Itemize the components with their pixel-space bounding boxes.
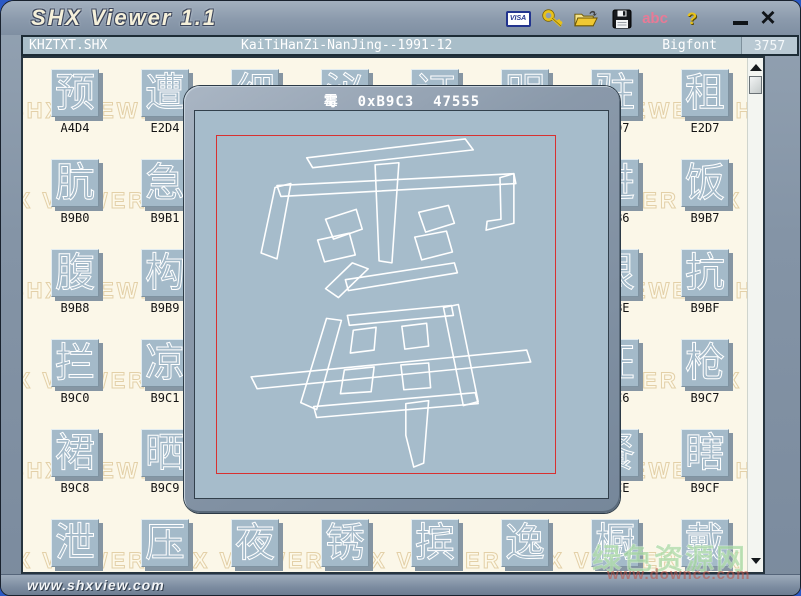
status-font-type: Bigfont — [662, 38, 717, 53]
key-icon — [542, 9, 566, 29]
scroll-up-icon[interactable] — [750, 64, 762, 71]
save-floppy-icon — [612, 9, 632, 29]
scrollbar-thumb[interactable] — [749, 76, 762, 94]
char-tile[interactable]: 瞎 — [681, 429, 729, 477]
char-code-label: B9C8 — [30, 481, 120, 495]
char-glyph: 夜 — [235, 520, 275, 566]
char-code-label: B9C0 — [30, 391, 120, 405]
char-tile[interactable]: 压 — [141, 519, 189, 567]
glyph-viewer-dialog[interactable]: 霉 0xB9C3 47555 — [184, 86, 620, 513]
char-glyph: 裙 — [55, 430, 95, 476]
char-code-label: B9BF — [660, 301, 747, 315]
char-tile[interactable]: 摈 — [411, 519, 459, 567]
char-glyph: 急 — [145, 160, 185, 206]
minimize-icon — [733, 21, 748, 25]
char-glyph: 压 — [145, 520, 185, 566]
question-mark-icon: ? — [687, 9, 697, 29]
abc-icon: abc — [642, 10, 668, 27]
status-filename: KHZTXT.SHX — [29, 38, 107, 53]
char-tile[interactable]: 锈 — [321, 519, 369, 567]
char-glyph: 抗 — [685, 250, 725, 296]
title-bar[interactable]: SHX Viewer 1.1 VISA — [1, 1, 801, 35]
char-glyph: 肮 — [55, 160, 95, 206]
glyph-outline-drawing — [217, 136, 555, 473]
char-tile[interactable]: 腹 — [51, 249, 99, 297]
char-tile[interactable]: 预 — [51, 69, 99, 117]
char-code-label: E2D7 — [660, 121, 747, 135]
char-tile[interactable]: 饭 — [681, 159, 729, 207]
glyph-bounding-box — [216, 135, 556, 474]
char-code-label: B9B8 — [30, 301, 120, 315]
license-key-button[interactable] — [541, 9, 567, 28]
char-code-label: B9C7 — [660, 391, 747, 405]
char-glyph: 枪 — [685, 340, 725, 386]
char-code-label: B9CF — [660, 481, 747, 495]
dialog-title: 霉 0xB9C3 47555 — [184, 91, 620, 111]
app-title: SHX Viewer 1.1 — [31, 5, 217, 31]
char-tile[interactable]: 拦 — [51, 339, 99, 387]
char-tile[interactable]: 逸 — [501, 519, 549, 567]
scroll-down-icon[interactable] — [751, 558, 761, 564]
char-glyph: 锈 — [325, 520, 365, 566]
glyph-count: 3757 — [754, 39, 785, 54]
open-file-button[interactable] — [573, 9, 599, 28]
char-tile[interactable]: 构 — [141, 249, 189, 297]
char-glyph: 瞎 — [685, 430, 725, 476]
char-tile[interactable]: 肮 — [51, 159, 99, 207]
glyph-canvas[interactable] — [194, 110, 609, 499]
char-tile[interactable]: 泄 — [51, 519, 99, 567]
register-button[interactable]: VISA — [505, 9, 531, 28]
char-tile[interactable]: 枪 — [681, 339, 729, 387]
app-window: SHX Viewer 1.1 VISA — [0, 0, 801, 596]
char-glyph: 腹 — [55, 250, 95, 296]
dialog-hex-code: 0xB9C3 — [358, 94, 415, 110]
char-glyph: 预 — [55, 70, 95, 116]
close-button[interactable]: × — [755, 3, 781, 31]
help-button[interactable]: ? — [679, 9, 705, 28]
char-glyph: 拦 — [55, 340, 95, 386]
char-tile[interactable]: 抗 — [681, 249, 729, 297]
char-tile[interactable]: 凉 — [141, 339, 189, 387]
char-tile[interactable]: 夜 — [231, 519, 279, 567]
glyph-count-panel: 3757 — [741, 37, 797, 54]
char-code-label: B9B0 — [30, 211, 120, 225]
char-code-label: A4D4 — [30, 121, 120, 135]
save-button[interactable] — [609, 9, 635, 28]
status-bar: KHZTXT.SHX KaiTiHanZi-NanJing--1991-12 B… — [21, 35, 799, 56]
visa-icon: VISA — [506, 11, 531, 27]
vertical-scrollbar[interactable] — [747, 58, 763, 572]
char-tile[interactable]: 急 — [141, 159, 189, 207]
char-glyph: 凉 — [145, 340, 185, 386]
char-tile[interactable]: 裙 — [51, 429, 99, 477]
char-glyph: 逸 — [505, 520, 545, 566]
char-glyph: 泄 — [55, 520, 95, 566]
char-tile[interactable]: 遭 — [141, 69, 189, 117]
minimize-button[interactable] — [729, 9, 751, 29]
dialog-char: 霉 — [324, 94, 339, 110]
char-glyph: 晒 — [145, 430, 185, 476]
char-glyph: 饭 — [685, 160, 725, 206]
char-glyph: 遭 — [145, 70, 185, 116]
open-folder-icon — [573, 9, 599, 29]
site-watermark-url: www.downcc.com — [607, 566, 750, 583]
char-tile[interactable]: 晒 — [141, 429, 189, 477]
text-preview-button[interactable]: abc — [642, 9, 668, 28]
footer-url: www.shxview.com — [27, 577, 165, 593]
char-code-label: B9B7 — [660, 211, 747, 225]
char-glyph: 租 — [685, 70, 725, 116]
char-tile[interactable]: 租 — [681, 69, 729, 117]
dialog-dec-code: 47555 — [433, 94, 480, 110]
char-glyph: 摈 — [415, 520, 455, 566]
char-glyph: 构 — [145, 250, 185, 296]
status-font-description: KaiTiHanZi-NanJing--1991-12 — [241, 38, 452, 53]
